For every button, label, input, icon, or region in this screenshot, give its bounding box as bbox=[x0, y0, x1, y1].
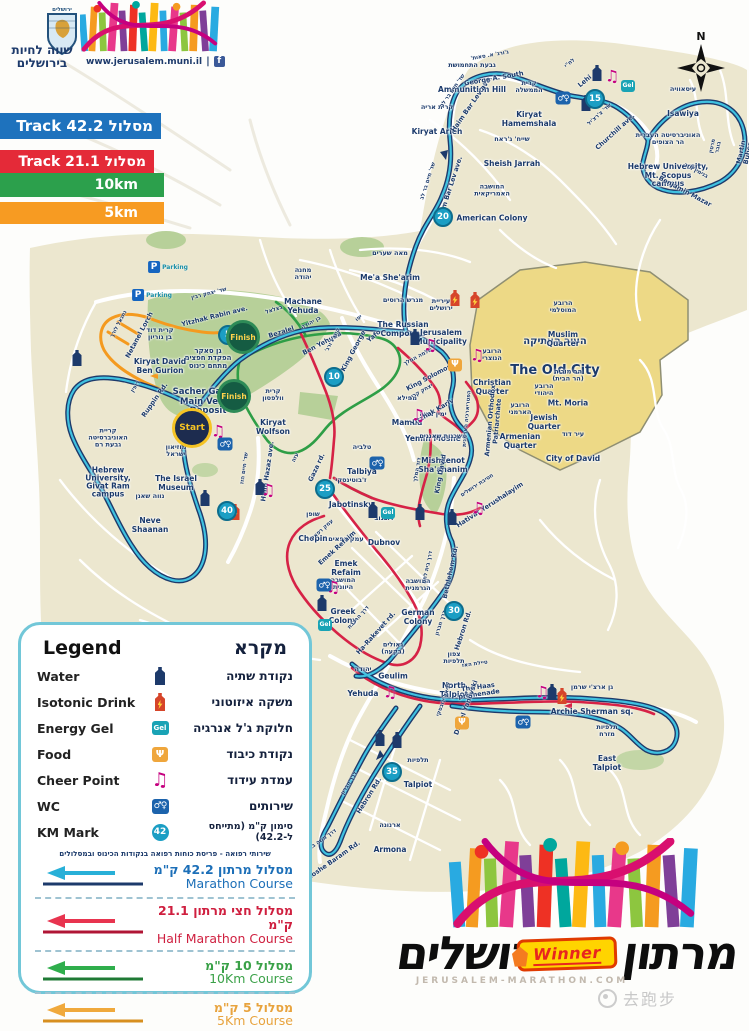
legend-course-row: מסלול 5 ק"מ 5Km Course bbox=[35, 992, 295, 1031]
km-icon: 42 bbox=[152, 824, 169, 841]
food-icon bbox=[152, 747, 168, 762]
legend-item: Cheer Point עמדת עידוד bbox=[35, 767, 295, 793]
facebook-icon[interactable] bbox=[214, 56, 225, 67]
marathon-website[interactable]: JERUSALEM-MARATHON.COM bbox=[407, 976, 637, 986]
legend-item: WC שירותים bbox=[35, 793, 295, 819]
legend-item: Food נקודת כיבוד bbox=[35, 741, 295, 767]
legend-item: KM Mark 42 סימון ק"מ (מתייחס ל-42.2) bbox=[35, 819, 295, 845]
event-logo: ירושלים Winner מרתון JERUSALEM-MARATHON.… bbox=[405, 838, 749, 1020]
legend-course-row: מסלול מרתון 42.2 ק"מ Marathon Course bbox=[35, 860, 295, 894]
water-icon bbox=[155, 667, 165, 685]
legend-items: Water נקודת שתיה Isotonic Drink משקה איז… bbox=[35, 663, 295, 845]
legend-item: Energy Gel חלוקת ג'ל אנרגיה bbox=[35, 715, 295, 741]
separator: | bbox=[206, 56, 210, 67]
municipality-website-link[interactable]: www.jerusalem.muni.il bbox=[86, 57, 202, 67]
watermark: 去跑步 bbox=[598, 986, 677, 1010]
logo-word-marathon: מרתון bbox=[619, 926, 741, 980]
track-key-bar: 10km bbox=[0, 173, 164, 197]
watermark-icon bbox=[598, 989, 617, 1008]
marathon-logo-icon bbox=[80, 0, 220, 56]
isotonic-icon bbox=[155, 693, 165, 711]
legend-item: Isotonic Drink משקה איזוטוני bbox=[35, 689, 295, 715]
course-arrow-icon bbox=[37, 865, 149, 889]
legend-medical-note: שירותי רפואה - פריסת כוחות רפואה בנקודות… bbox=[35, 845, 295, 860]
start-badge: Start bbox=[172, 408, 212, 448]
legend-box: Legend מקרא Water נקודת שתיה Isotonic Dr… bbox=[18, 622, 312, 994]
track-key-bar: Track 42.2 מסלול bbox=[0, 113, 161, 139]
legend-title-he: מקרא bbox=[234, 637, 287, 659]
legend-title-en: Legend bbox=[43, 637, 122, 659]
svg-text:ירושלים: ירושלים bbox=[52, 7, 72, 13]
finish-badge: Finish bbox=[217, 379, 251, 413]
municipality-tagline: שווה לחיות בירושלים bbox=[0, 44, 84, 70]
winner-sponsor-badge: Winner bbox=[516, 936, 617, 971]
legend-course-row: מסלול חצי מרתון 21.1 ק"מ Half Marathon C… bbox=[35, 897, 295, 947]
course-arrow-icon bbox=[37, 960, 149, 984]
track-key-bar: Track 21.1 מסלול bbox=[0, 150, 154, 174]
winner-label: Winner bbox=[533, 942, 601, 965]
gel-icon bbox=[152, 721, 169, 735]
course-arrow-icon bbox=[37, 913, 149, 937]
wc-icon bbox=[152, 799, 169, 814]
header: ירושלים שווה לחיות בירושלים www.jerusale… bbox=[0, 0, 300, 100]
legend-item: Water נקודת שתיה bbox=[35, 663, 295, 689]
watermark-text: 去跑步 bbox=[623, 986, 677, 1010]
poster: N גבעת התחמושת Ammunition Hill קרית אריה… bbox=[0, 0, 749, 1020]
cheer-icon bbox=[151, 769, 168, 791]
legend-course-row: מסלול 10 ק"מ 10Km Course bbox=[35, 950, 295, 989]
finish-badge: Finish bbox=[226, 320, 260, 354]
track-key-bar: 5km bbox=[0, 202, 164, 224]
legend-courses: מסלול מרתון 42.2 ק"מ Marathon Course מסל… bbox=[35, 860, 295, 1031]
course-arrow-icon bbox=[37, 1002, 149, 1026]
marathon-logo-large-icon bbox=[410, 838, 740, 934]
